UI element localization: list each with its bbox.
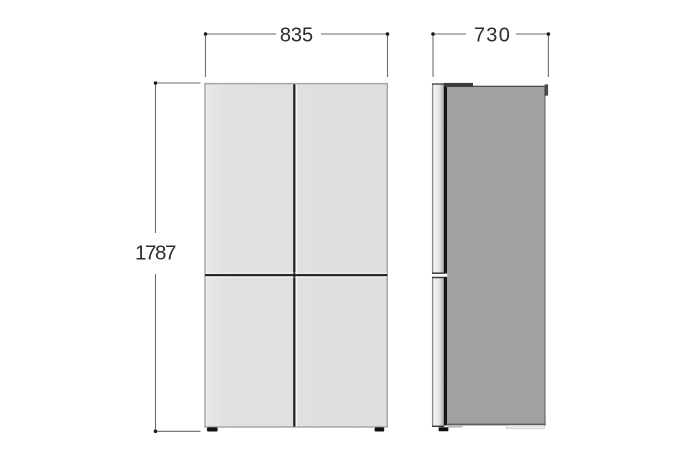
svg-text:1787: 1787 xyxy=(135,242,176,265)
svg-text:835: 835 xyxy=(280,24,313,46)
svg-text:730: 730 xyxy=(474,24,511,46)
